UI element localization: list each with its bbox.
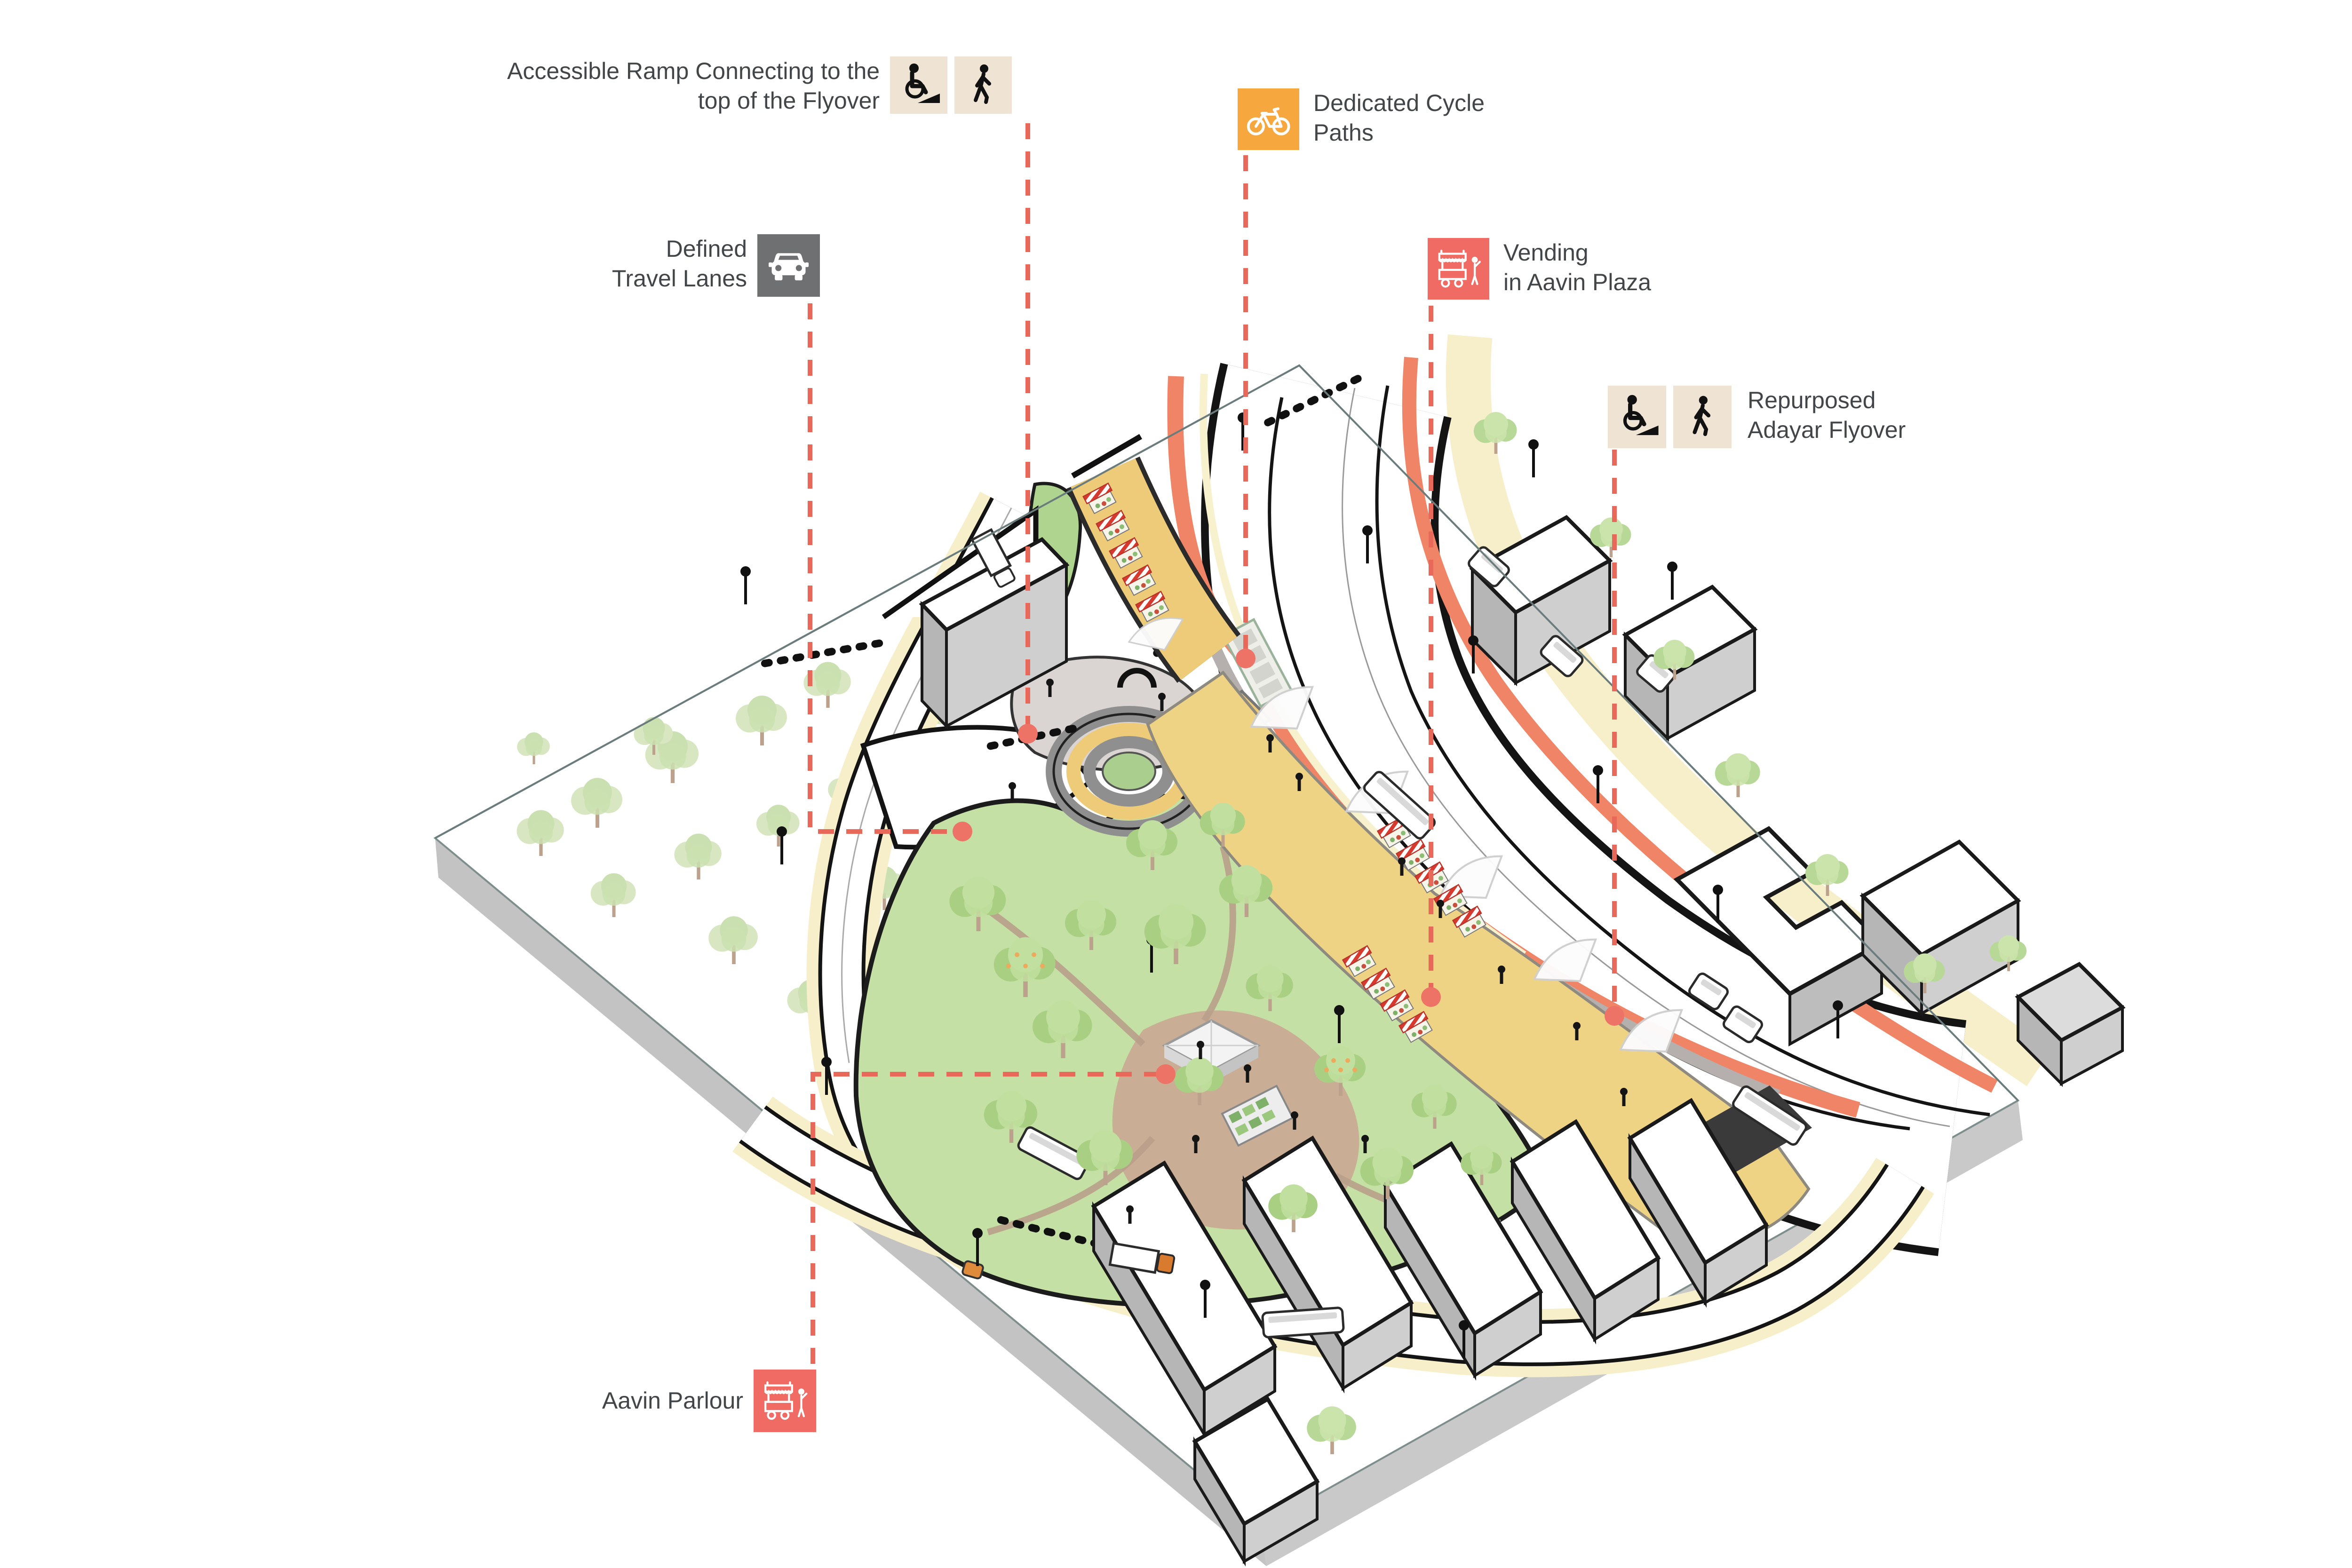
callout-aavin-parlour: Aavin Parlour <box>499 1370 816 1432</box>
callout-accessible-ramp-text: Accessible Ramp Connecting to the top of… <box>507 56 880 116</box>
pedestrian-icon <box>1673 386 1732 448</box>
callout-travel-lanes-text: Defined Travel Lanes <box>531 234 747 293</box>
vending-cart-icon <box>754 1370 816 1432</box>
leader-dot-cycle-paths <box>1236 649 1255 668</box>
callout-cycle-paths: Dedicated Cycle Paths <box>1238 88 1485 150</box>
callout-vending: Vending in Aavin Plaza <box>1428 238 1651 300</box>
leader-dot-repurposed <box>1605 1006 1624 1026</box>
vending-cart-icon <box>1428 238 1489 300</box>
bicycle-icon <box>1238 88 1299 150</box>
leader-dot-aavin-parlour <box>1156 1064 1176 1084</box>
site-illustration <box>0 0 2352 1568</box>
wheelchair-ramp-icon <box>890 56 947 114</box>
wheelchair-ramp-icon <box>1608 386 1666 448</box>
callout-travel-lanes: Defined Travel Lanes <box>531 234 820 297</box>
leader-dot-accessible-ramp <box>1018 724 1038 744</box>
car-icon <box>757 234 820 297</box>
diagram-stage: Accessible Ramp Connecting to the top of… <box>0 0 2352 1568</box>
leader-dot-vending <box>1421 987 1441 1007</box>
callout-accessible-ramp: Accessible Ramp Connecting to the top of… <box>507 56 1012 116</box>
leader-dot-travel-lanes <box>953 822 972 841</box>
callout-repurposed-text: Repurposed Adayar Flyover <box>1748 386 1906 445</box>
callout-vending-text: Vending in Aavin Plaza <box>1503 238 1651 297</box>
callout-cycle-paths-text: Dedicated Cycle Paths <box>1313 88 1485 148</box>
callout-repurposed: Repurposed Adayar Flyover <box>1608 386 1906 448</box>
pedestrian-icon <box>954 56 1012 114</box>
callout-aavin-parlour-text: Aavin Parlour <box>499 1386 743 1416</box>
